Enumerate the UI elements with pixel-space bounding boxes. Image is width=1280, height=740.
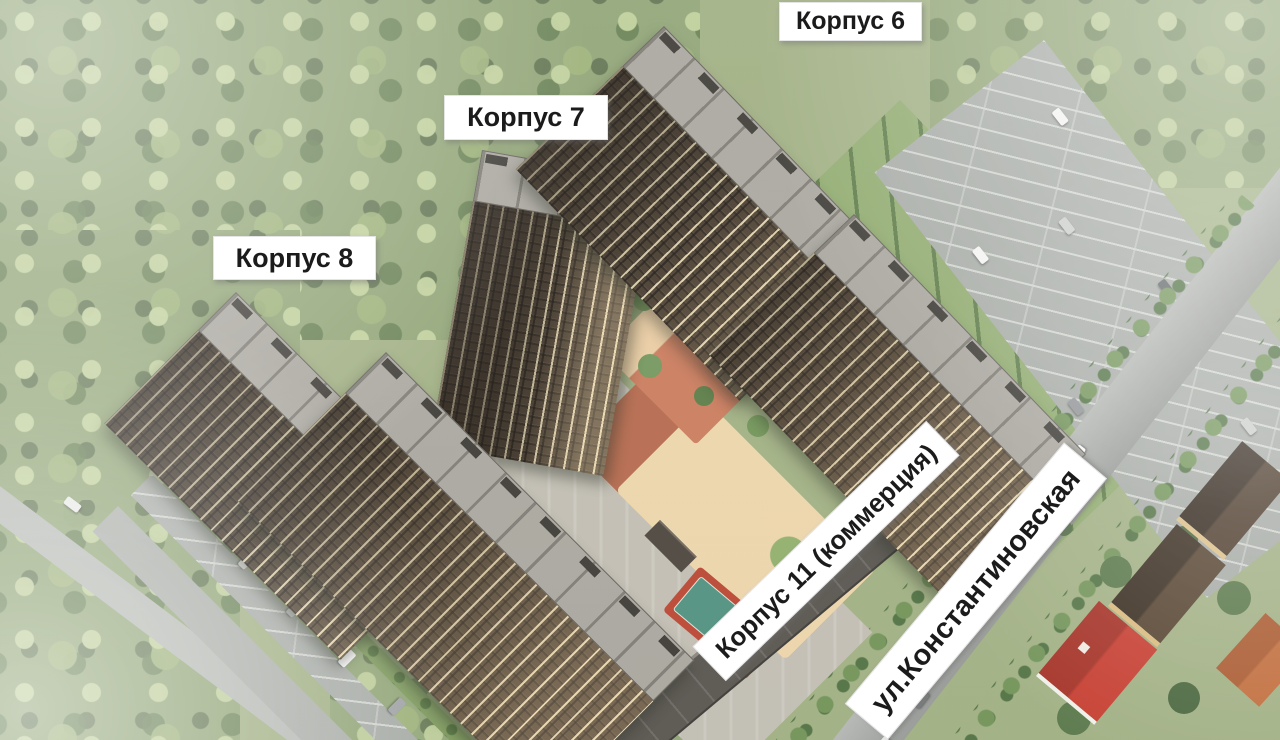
label-korpus-7-text: Корпус 7 (467, 102, 585, 133)
label-korpus-6: Корпус 6 (779, 2, 922, 41)
label-korpus-6-text: Корпус 6 (796, 7, 905, 36)
label-korpus-7: Корпус 7 (444, 95, 608, 140)
site-plan-render: Корпус 6 Корпус 7 Корпус 8 Корпус 11 (ко… (0, 0, 1280, 740)
car (1240, 417, 1258, 436)
label-korpus-8-text: Корпус 8 (236, 243, 354, 274)
car (1058, 216, 1076, 235)
car (1051, 107, 1069, 126)
car (972, 246, 990, 265)
chimney (1078, 641, 1091, 654)
label-korpus-8: Корпус 8 (213, 236, 376, 280)
house-orange-roof (1216, 613, 1280, 707)
